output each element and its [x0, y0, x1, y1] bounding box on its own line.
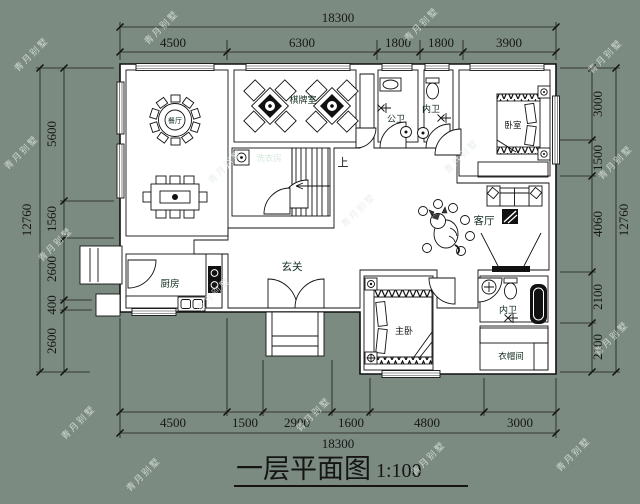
floor-plan-drawing: 餐厅 棋牌室 洗衣房 公卫 内卫 卧室 客厅 玄关 厨房 主卧 内卫 衣帽间 上…: [0, 0, 640, 504]
room-label-chess: 棋牌室: [289, 94, 316, 105]
dim-value: 2600: [44, 328, 59, 354]
room-label-foyer: 玄关: [282, 260, 303, 273]
room-label-inner-bath-top: 内卫: [422, 103, 440, 114]
dim-value: 6300: [289, 35, 315, 50]
dim-value: 1600: [338, 415, 364, 430]
back-step: [96, 294, 120, 316]
dim-value: 4500: [160, 35, 186, 50]
window-chess-top: [246, 64, 350, 71]
dim-value: 2100: [590, 284, 605, 310]
dim-left-total: 12760: [19, 204, 34, 237]
room-label-dining: 餐厅: [168, 116, 182, 125]
dim-value: 4800: [414, 415, 440, 430]
dim-value: 3000: [590, 91, 605, 117]
dim-bottom-total: 18300: [322, 436, 355, 451]
room-label-cloakroom: 衣帽间: [498, 351, 524, 361]
dim-value: 3900: [496, 35, 522, 50]
living-sofa: [487, 186, 542, 206]
window-public-bath-top: [382, 64, 412, 71]
dim-value: 3000: [507, 415, 533, 430]
dim-value: 1500: [232, 415, 258, 430]
room-label-laundry: 洗衣房: [256, 153, 282, 163]
table-centerpiece: [172, 194, 178, 200]
room-label-inner-bath-bottom: 内卫: [499, 304, 517, 315]
window-kitchen-bottom: [132, 309, 176, 316]
window-dining-top: [136, 64, 214, 71]
dim-value: 400: [44, 295, 59, 315]
title-text: 一层平面图: [236, 454, 371, 484]
dim-value: 1560: [44, 206, 59, 232]
window-inner-bath-top: [425, 64, 449, 71]
dim-top-total: 18300: [322, 10, 355, 25]
window-bedroom-right: [553, 96, 560, 164]
dim-value: 4500: [160, 415, 186, 430]
window-master-bottom: [382, 371, 440, 378]
dim-value: 4060: [590, 211, 605, 237]
window-dining-left-2: [117, 144, 124, 198]
window-bedroom-top: [470, 64, 544, 71]
stairs-up-label: 上: [338, 156, 349, 169]
room-label-living: 客厅: [474, 214, 495, 227]
room-label-public-bath: 公卫: [387, 114, 405, 124]
tv-symbol: [502, 209, 518, 224]
window-dining-left-1: [117, 82, 124, 134]
dim-right-total: 12760: [616, 204, 631, 237]
room-label-bedroom: 卧室: [504, 120, 522, 130]
room-label-master: 主卧: [395, 325, 413, 336]
left-bump: [80, 246, 122, 284]
dim-value: 1800: [428, 35, 454, 50]
room-label-kitchen: 厨房: [160, 278, 179, 290]
dim-value: 5600: [44, 121, 59, 147]
entry-porch: [266, 312, 324, 356]
